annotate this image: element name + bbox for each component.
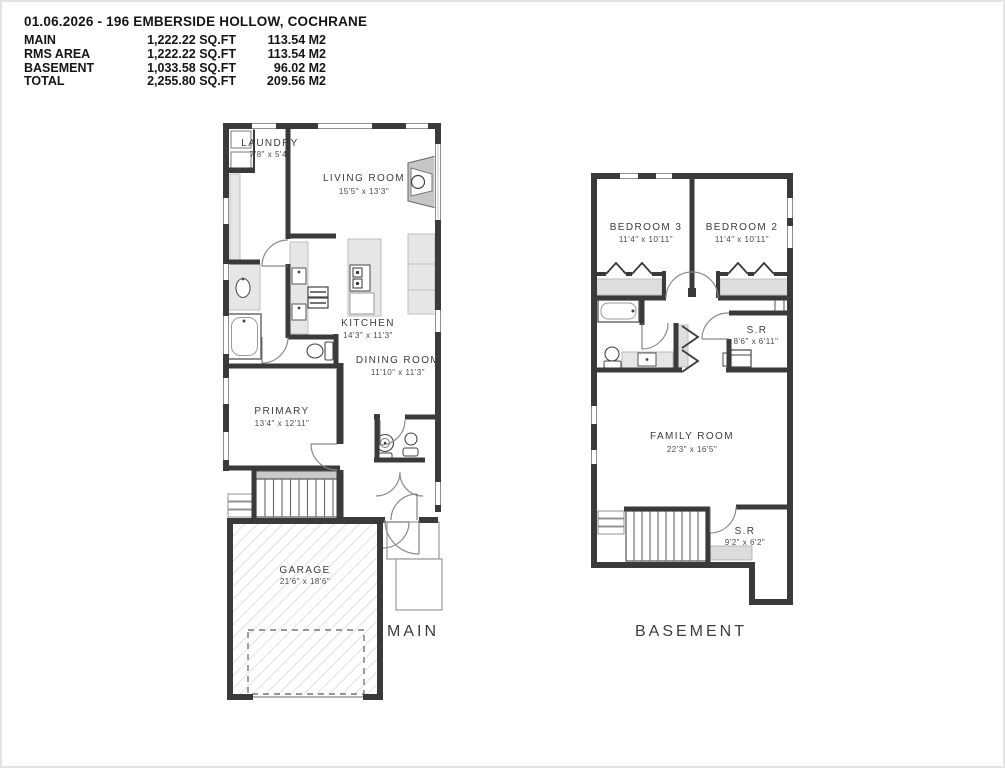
room-dims: 13'4" x 12'11" [255, 419, 310, 428]
closet-shelf [720, 279, 788, 295]
room-label: FAMILY ROOM [650, 431, 734, 442]
bathtub-icon [228, 314, 261, 359]
interior-walls [594, 176, 790, 562]
fireplace-icon [408, 156, 436, 208]
room-label: LAUNDRY [241, 138, 298, 149]
basement-plan: BEDROOM 3 11'4" x 10'11" BEDROOM 2 11'4"… [591, 173, 794, 641]
room-dims: 11'10" x 11'3" [371, 368, 425, 377]
room-label: DINING ROOM [356, 355, 440, 366]
room-dims: 8'6" x 6'11" [734, 337, 779, 346]
powder-sink-icon [403, 433, 418, 456]
electrical-panel-icon [775, 299, 784, 311]
floor-caption-basement: BASEMENT [635, 623, 747, 640]
stairs [598, 511, 752, 561]
closet-shelf [678, 325, 688, 367]
bathtub-icon [598, 300, 639, 322]
room-label: KITCHEN [341, 318, 395, 329]
room-dims: 21'6" x 18'6" [280, 577, 330, 586]
room-label: LIVING ROOM [323, 173, 405, 184]
room-label: BEDROOM 2 [706, 222, 779, 233]
room-label: S.R [747, 325, 768, 336]
room-dims: 11'4" x 10'11" [619, 235, 673, 244]
room-dims: 22'3" x 16'5" [667, 445, 717, 454]
toilet-icon [307, 342, 333, 360]
ensuite-vanity [228, 264, 260, 310]
room-dims: 14'3" x 11'3" [343, 331, 393, 340]
stairs [228, 471, 340, 517]
room-dims: 9'2" x 6'2" [725, 538, 765, 547]
room-dims: 15'5" x 13'3" [339, 187, 389, 196]
closet-shelf [596, 279, 662, 295]
floorplan-page: 01.06.2026 - 196 EMBERSIDE HOLLOW, COCHR… [0, 0, 1005, 768]
garage-floor-hatch [233, 524, 377, 695]
wall-stub [688, 288, 696, 297]
wall-oven-icon [308, 287, 328, 308]
room-label: GARAGE [279, 565, 330, 576]
vanity-sink [622, 352, 673, 368]
main-floor-plan: LAUNDRY 7'8" x 5'4" LIVING ROOM 15'5" x … [223, 123, 443, 701]
door-arc [642, 272, 736, 533]
room-label: S.R [735, 526, 756, 537]
kitchen-counter [290, 242, 308, 334]
dining-cabinet [408, 234, 435, 314]
room-label: PRIMARY [254, 406, 309, 417]
floor-plan-canvas: LAUNDRY 7'8" x 5'4" LIVING ROOM 15'5" x … [2, 2, 1005, 768]
kitchen-island [348, 239, 381, 316]
floor-caption-main: MAIN [387, 623, 439, 640]
mudroom-bench [230, 174, 240, 260]
room-label: BEDROOM 3 [610, 222, 683, 233]
toilet-icon [604, 347, 621, 368]
front-porch [387, 522, 442, 610]
room-dims: 7'8" x 5'4" [250, 150, 290, 159]
room-dims: 11'4" x 10'11" [715, 235, 769, 244]
